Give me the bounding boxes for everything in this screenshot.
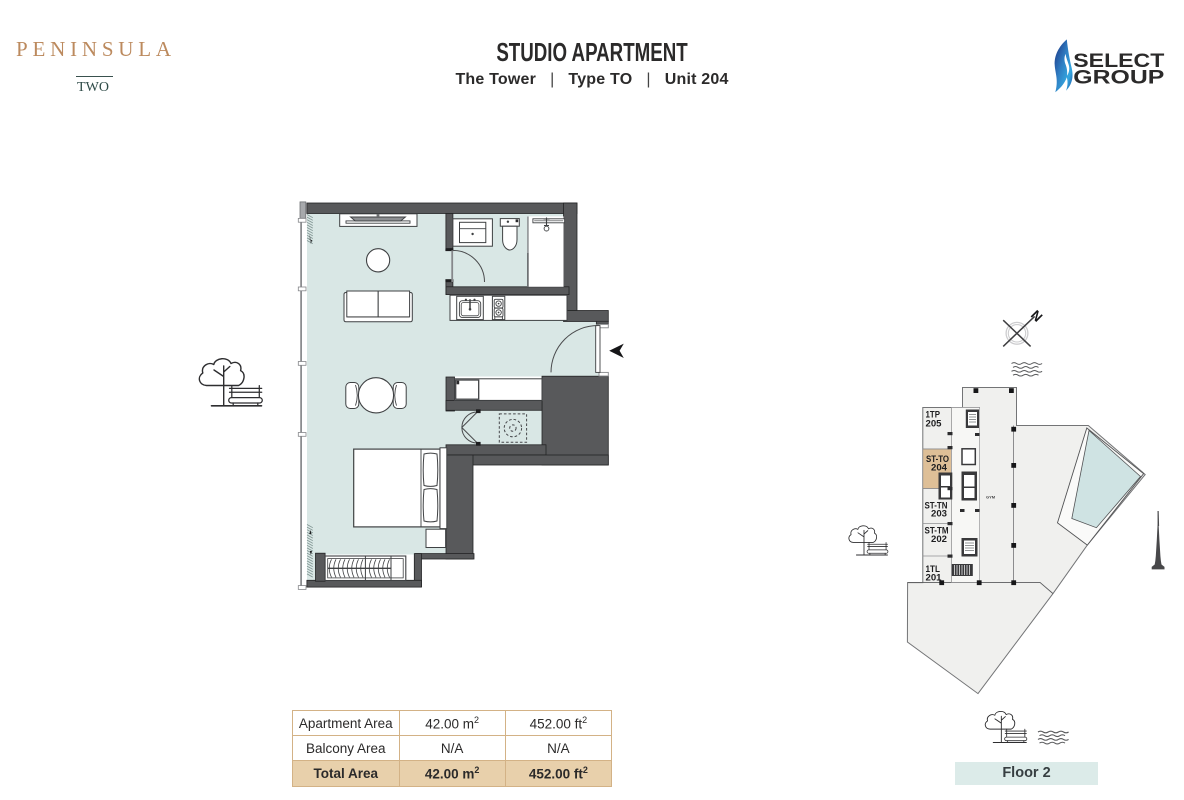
svg-text:202: 202	[931, 534, 947, 544]
svg-text:GYM: GYM	[986, 495, 996, 500]
svg-text:N: N	[1028, 307, 1046, 325]
svg-text:204: 204	[931, 462, 947, 472]
svg-text:201: 201	[926, 572, 942, 582]
svg-text:205: 205	[926, 418, 942, 428]
svg-text:203: 203	[931, 509, 947, 519]
